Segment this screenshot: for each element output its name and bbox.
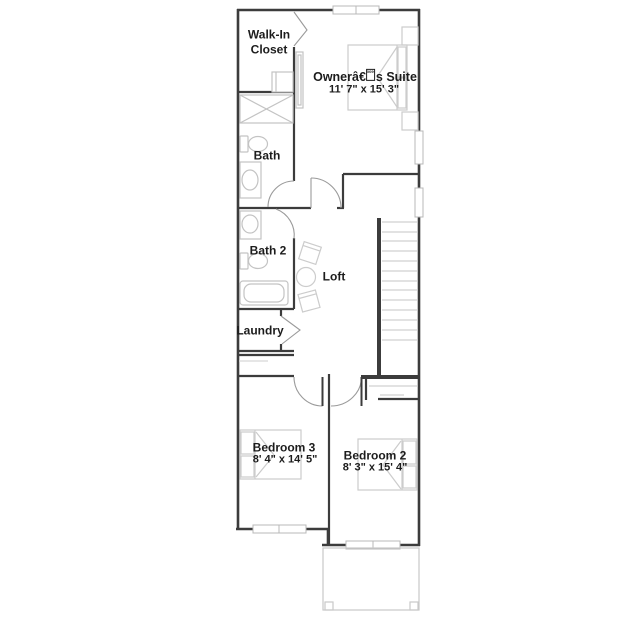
bath-door-arc	[268, 181, 294, 207]
armchair	[299, 242, 322, 265]
linen-cabinet-inner	[298, 55, 301, 105]
room-label-bath-2: Bath 2	[250, 244, 287, 259]
room-label-laundry: Laundry	[236, 324, 283, 339]
closet-bifold-door	[294, 12, 307, 46]
stair-treads	[382, 222, 417, 340]
nightstand	[402, 27, 418, 45]
side-table	[297, 268, 316, 287]
deck-post	[410, 602, 418, 610]
bathtub-inner	[244, 284, 284, 302]
sink	[242, 170, 258, 190]
suite-door-arc	[311, 178, 341, 208]
armchair	[298, 290, 320, 312]
floor-plan: Walk-In Closet Ownerâ€0099s Suite 11' 7"…	[0, 0, 640, 640]
stairs	[377, 218, 417, 377]
laundry-door	[281, 316, 300, 344]
bath2-door-arc	[276, 209, 294, 239]
bedroom3-door-arc	[294, 377, 323, 406]
sink	[242, 215, 258, 233]
deck-post	[325, 602, 333, 610]
room-label-bath: Bath	[254, 149, 281, 164]
room-dimensions-bedroom-3: 8' 4" x 14' 5"	[253, 453, 318, 466]
room-label-loft: Loft	[323, 270, 346, 285]
deck-outline	[323, 548, 419, 610]
closet-shelf-box	[272, 72, 293, 92]
window	[415, 131, 423, 164]
nightstand	[402, 112, 418, 130]
stair-railing-wall	[377, 218, 381, 377]
room-label-walk-in-closet: Walk-In Closet	[248, 27, 290, 56]
window	[415, 188, 423, 217]
room-dimensions-bedroom-2: 8' 3" x 15' 4"	[343, 461, 408, 474]
room-dimensions-owner-suite: 11' 7" x 15' 3"	[329, 83, 399, 96]
bedroom2-door-arc	[331, 377, 362, 406]
missing-glyph-box: 0099	[366, 69, 375, 81]
toilet-tank	[240, 136, 248, 152]
toilet-tank	[240, 253, 248, 269]
floor-plan-drawing	[0, 0, 640, 640]
